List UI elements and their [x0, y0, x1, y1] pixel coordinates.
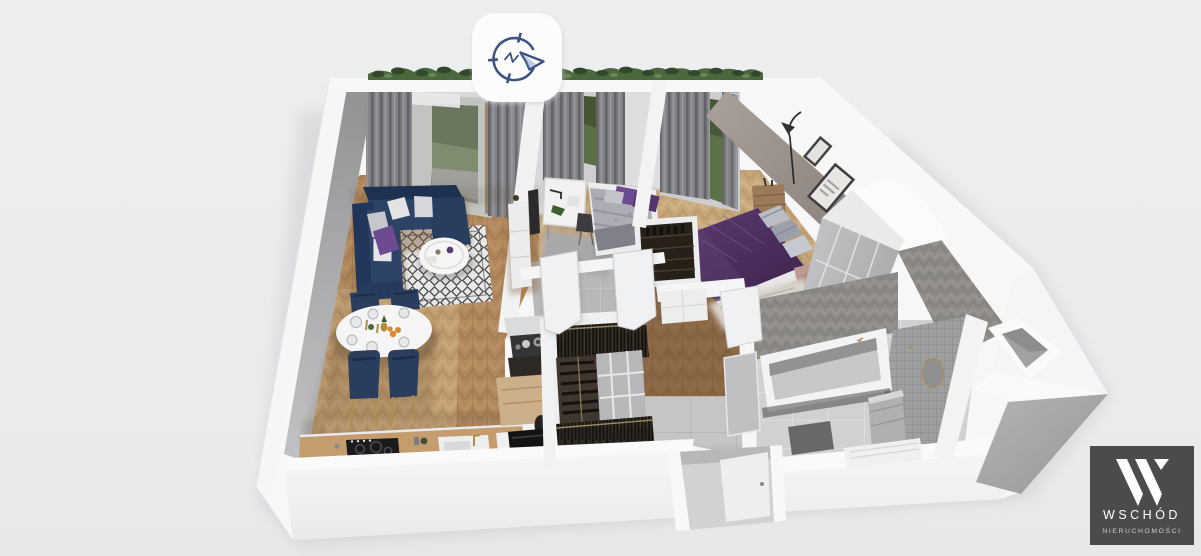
svg-text:WSCHÓD: WSCHÓD	[1103, 507, 1181, 522]
svg-text:NIERUCHOMOŚCI: NIERUCHOMOŚCI	[1102, 526, 1181, 535]
